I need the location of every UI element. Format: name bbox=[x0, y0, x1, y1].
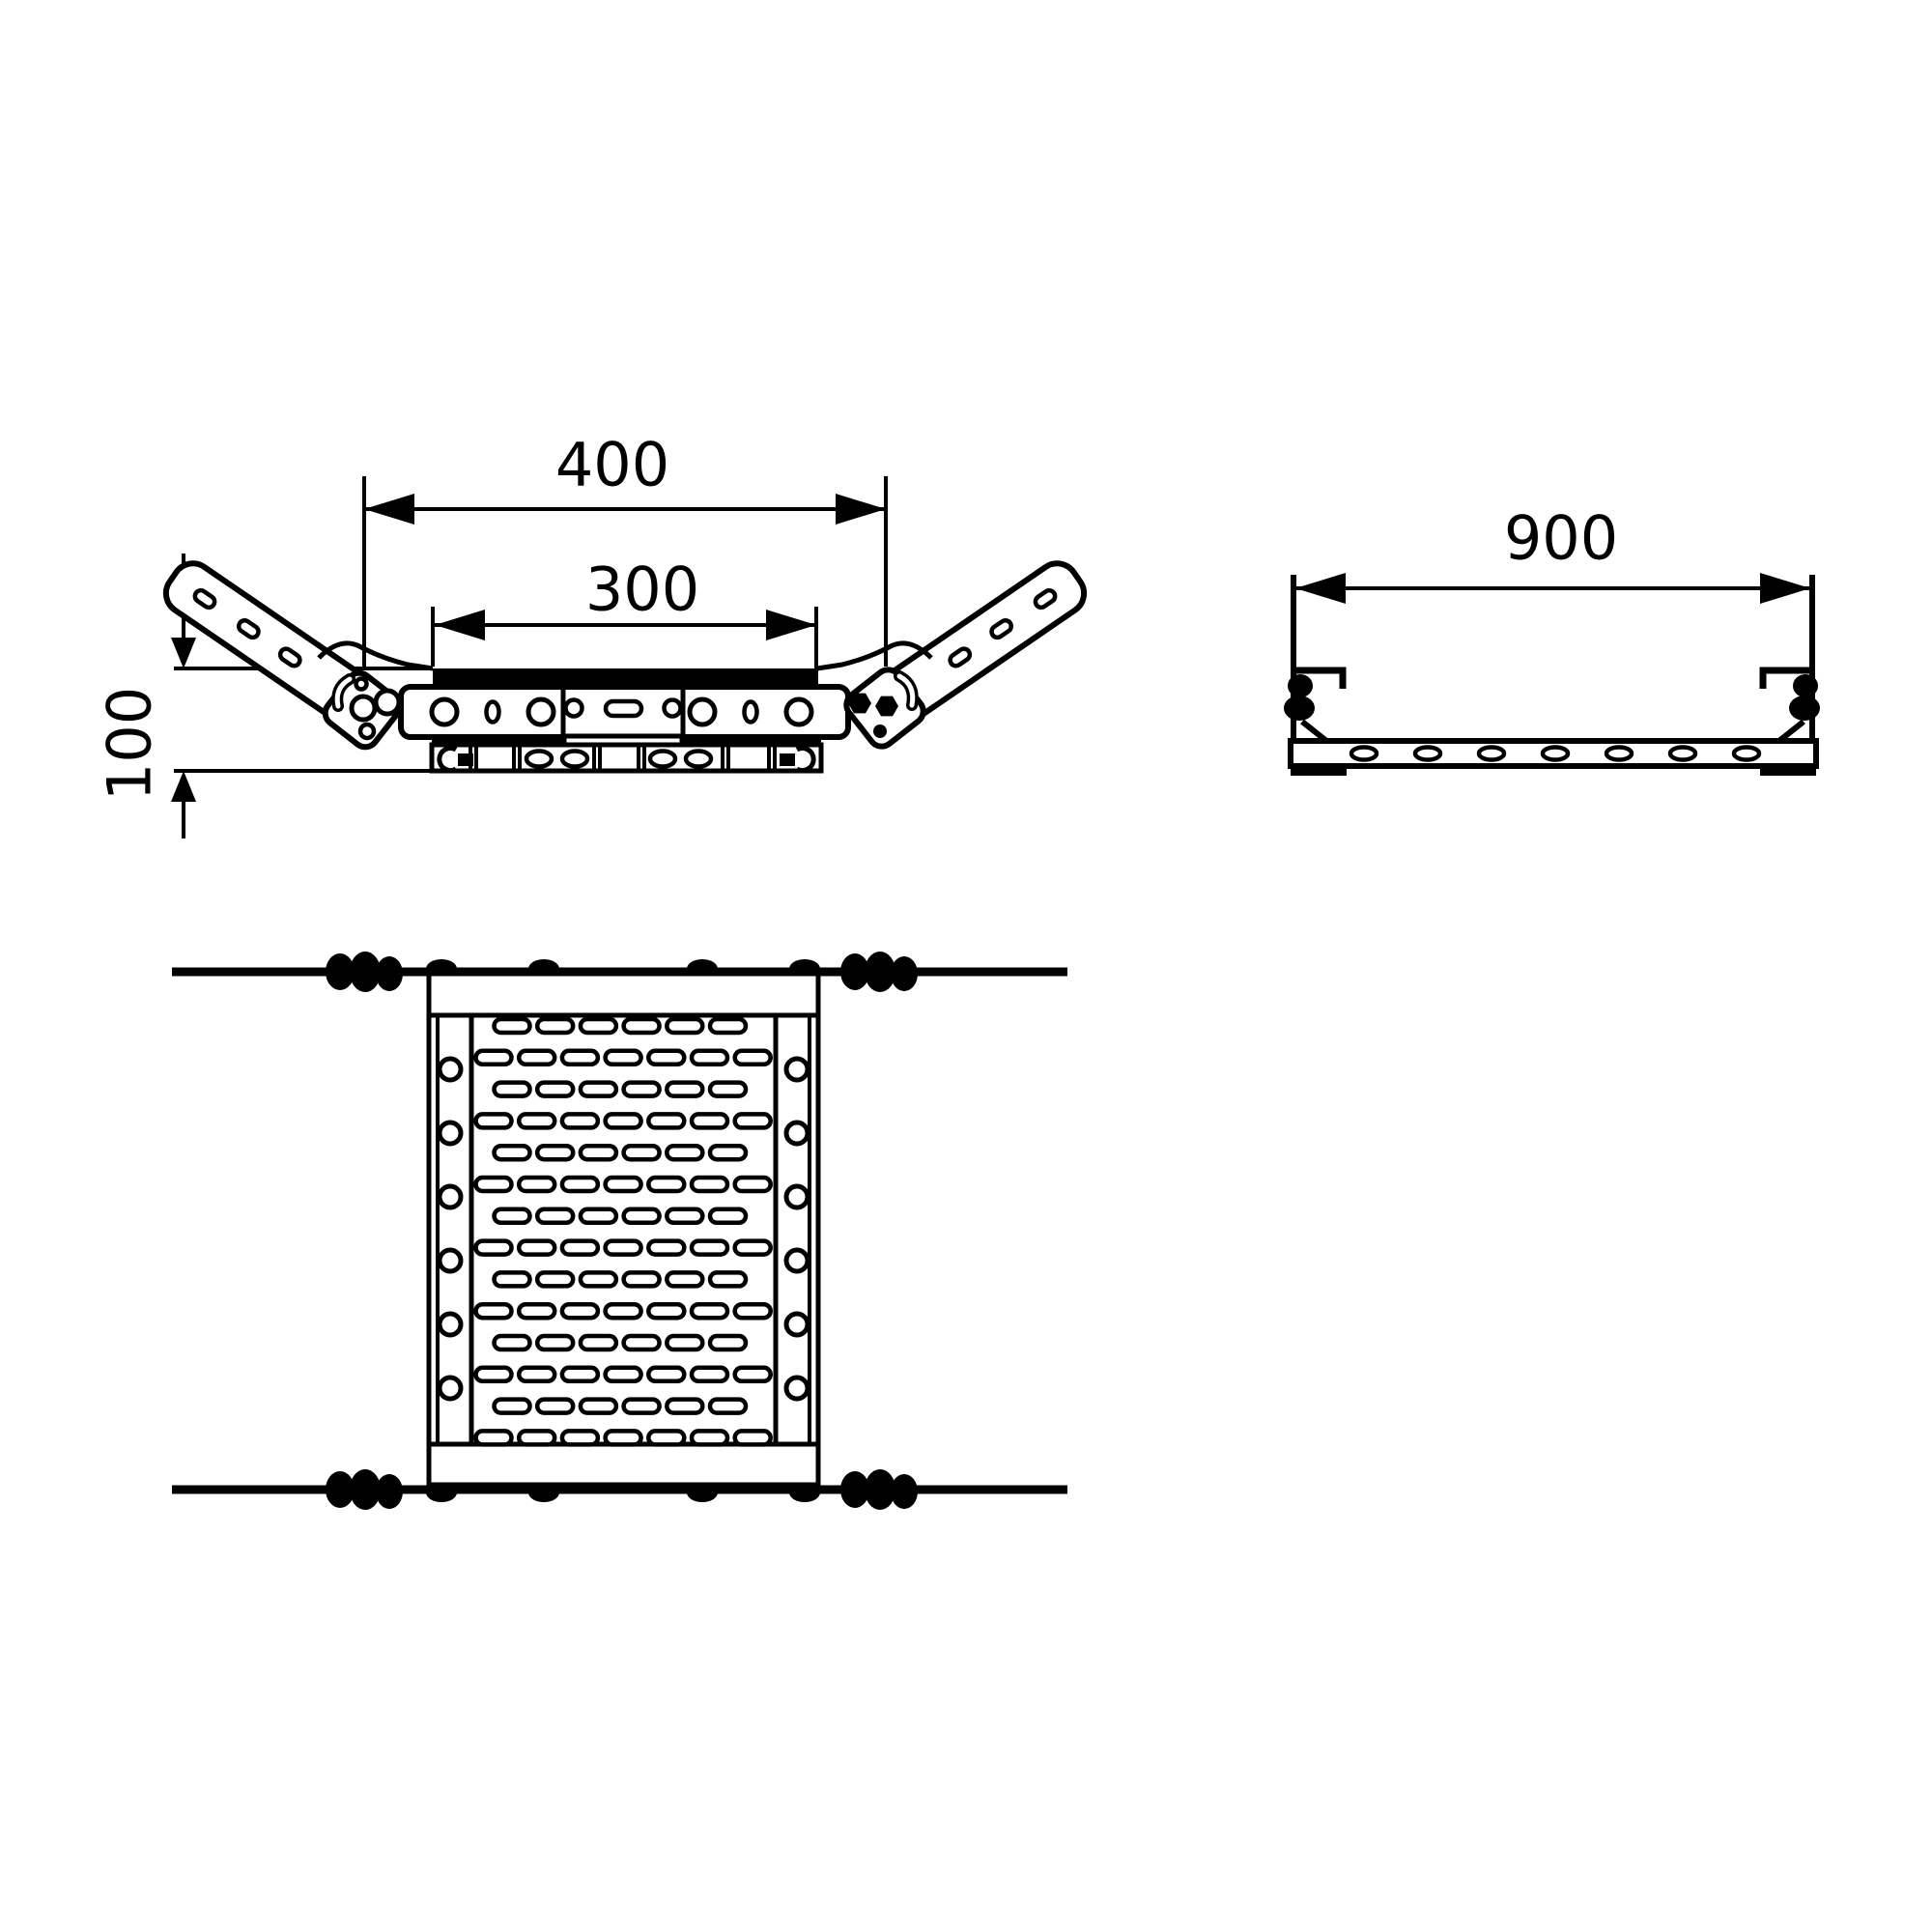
arrow-right-icon bbox=[1760, 573, 1810, 604]
dimension-label-900: 900 bbox=[1504, 503, 1618, 574]
dimension-width-400: 400 bbox=[364, 430, 886, 668]
left-foot bbox=[1291, 765, 1347, 776]
technical-drawing: 100 bbox=[0, 0, 1932, 1932]
dimension-label-400: 400 bbox=[555, 430, 669, 500]
beam-center-slot bbox=[606, 701, 641, 716]
plan-top-bar bbox=[429, 974, 818, 1015]
drawing-canvas: 100 bbox=[0, 0, 1932, 1932]
wire-clamp-cluster bbox=[840, 1469, 918, 1510]
lower-rail bbox=[432, 745, 821, 771]
arrow-left-icon bbox=[364, 494, 414, 525]
plan-bottom-bar bbox=[429, 1444, 818, 1485]
arrow-right-icon bbox=[766, 610, 816, 640]
dimension-label-300: 300 bbox=[585, 554, 699, 625]
front-view: 100 bbox=[95, 430, 1093, 839]
dimension-length-900: 900 bbox=[1295, 503, 1810, 605]
right-foot bbox=[1760, 765, 1816, 776]
dimension-label-100: 100 bbox=[95, 687, 165, 801]
right-wall-bolts bbox=[1789, 674, 1820, 721]
wire-clamp-cluster bbox=[326, 1469, 403, 1510]
dimension-width-300: 300 bbox=[433, 554, 816, 689]
arrow-right-icon bbox=[836, 494, 886, 525]
left-wall-bolts bbox=[1284, 674, 1315, 721]
arrow-left-icon bbox=[435, 610, 485, 640]
arrow-down-icon bbox=[171, 638, 196, 668]
wire-clamp-cluster bbox=[326, 952, 403, 992]
wire-clamp-cluster bbox=[840, 952, 918, 992]
side-view: 900 bbox=[1284, 503, 1820, 777]
plan-view bbox=[172, 952, 1067, 1510]
arrow-left-icon bbox=[1295, 573, 1346, 604]
arrow-up-icon bbox=[171, 771, 196, 802]
